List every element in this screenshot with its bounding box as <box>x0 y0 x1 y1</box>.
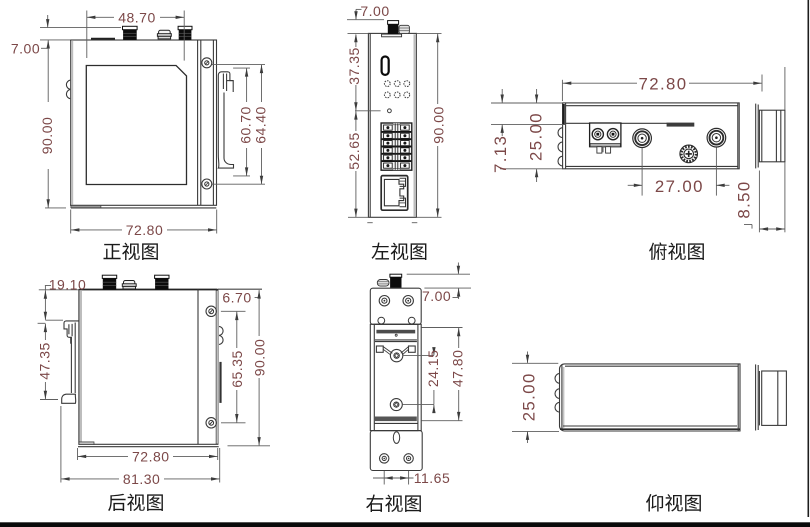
svg-text:7.13: 7.13 <box>491 135 510 173</box>
svg-text:90.00: 90.00 <box>39 117 55 155</box>
svg-text:25.00: 25.00 <box>520 372 539 421</box>
svg-text:72.80: 72.80 <box>639 75 688 94</box>
svg-text:72.80: 72.80 <box>132 448 170 464</box>
svg-text:8.50: 8.50 <box>734 180 753 218</box>
svg-text:65.35: 65.35 <box>229 350 245 388</box>
svg-text:72.80: 72.80 <box>126 222 164 238</box>
svg-text:37.35: 37.35 <box>346 47 362 85</box>
svg-text:47.80: 47.80 <box>449 350 465 388</box>
svg-text:7.00: 7.00 <box>11 41 40 57</box>
svg-text:90.00: 90.00 <box>430 106 446 144</box>
svg-text:64.40: 64.40 <box>253 106 269 144</box>
svg-text:25.00: 25.00 <box>526 112 545 161</box>
svg-text:90.00: 90.00 <box>251 339 267 377</box>
svg-text:6.70: 6.70 <box>222 290 251 306</box>
svg-text:27.00: 27.00 <box>655 177 704 196</box>
svg-text:60.70: 60.70 <box>238 106 254 144</box>
svg-text:48.70: 48.70 <box>118 9 156 25</box>
svg-text:11.65: 11.65 <box>414 470 451 486</box>
svg-text:52.65: 52.65 <box>346 132 362 170</box>
svg-text:7.00: 7.00 <box>422 288 451 304</box>
svg-text:7.00: 7.00 <box>360 3 389 19</box>
svg-text:19.10: 19.10 <box>49 276 87 292</box>
svg-text:24.15: 24.15 <box>425 350 441 388</box>
svg-text:81.30: 81.30 <box>123 471 161 487</box>
svg-text:47.35: 47.35 <box>36 342 52 380</box>
